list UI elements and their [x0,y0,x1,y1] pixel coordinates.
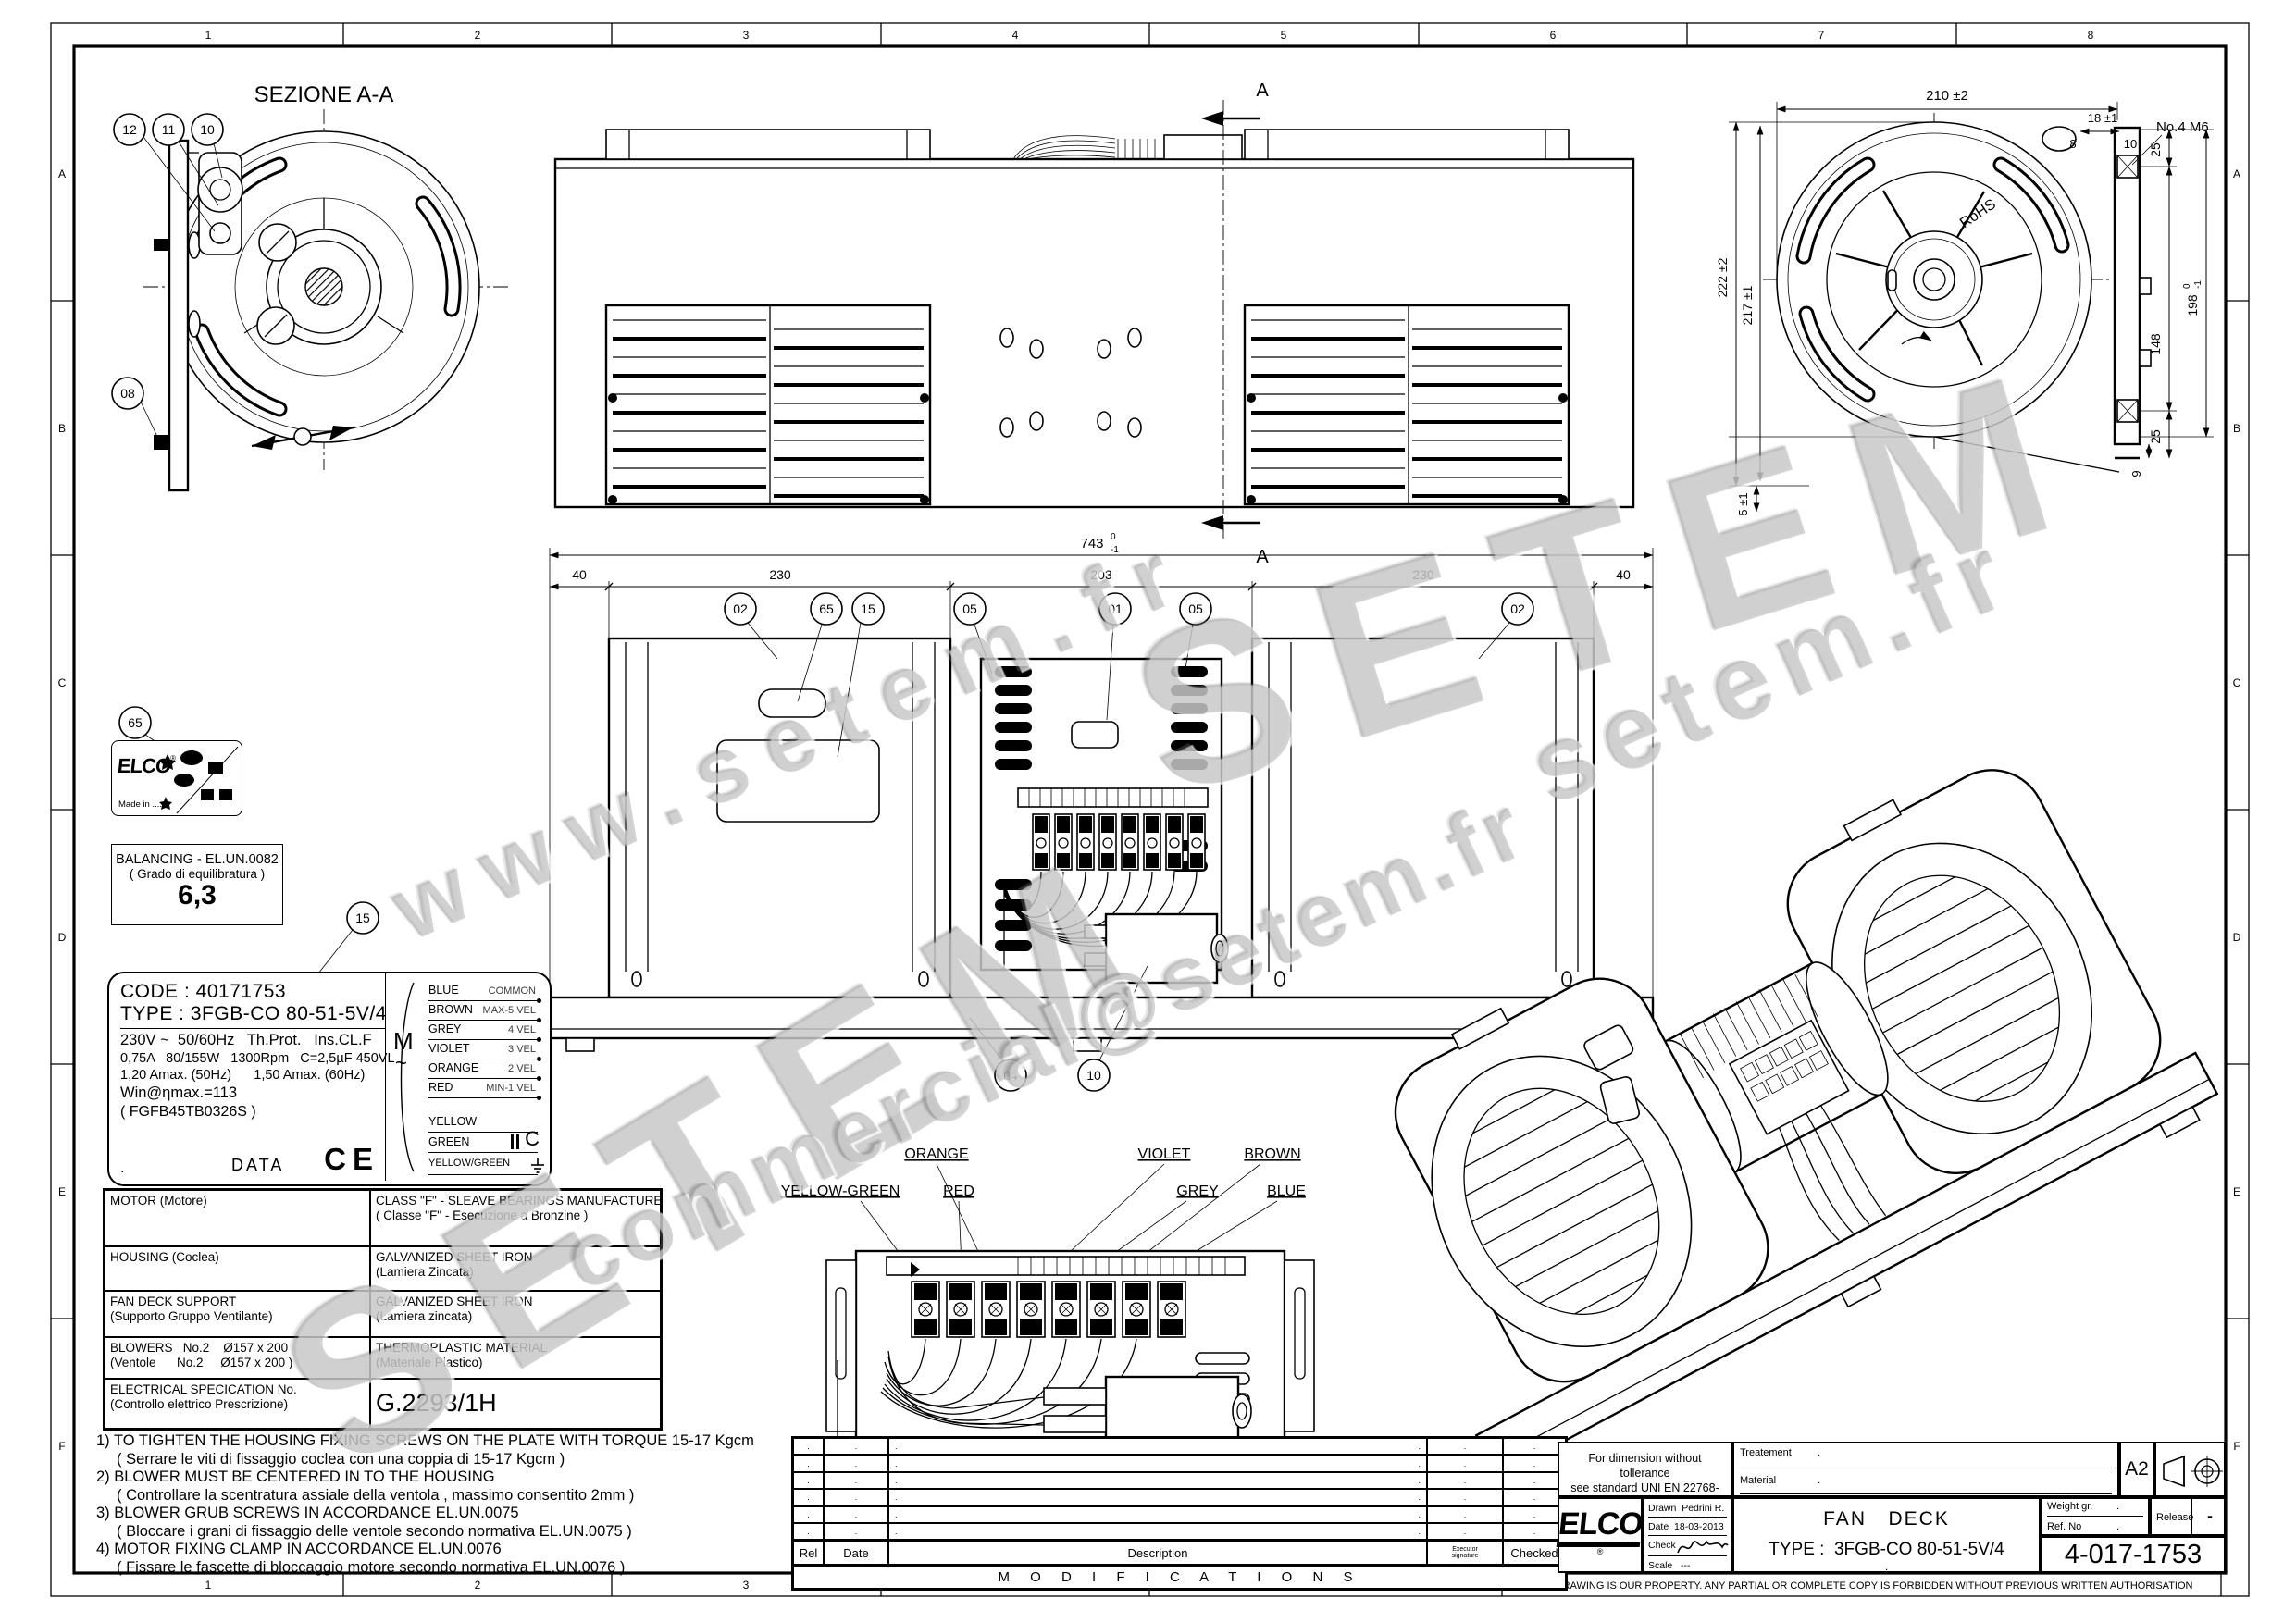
mod-header-rel: Rel [793,1540,824,1566]
svg-text:25: 25 [2148,142,2163,157]
svg-text:1: 1 [205,1579,212,1592]
svg-text:E: E [2233,1185,2240,1198]
svg-text:A: A [1256,547,1269,567]
svg-text:6: 6 [1550,29,1557,42]
plate-dot: . [120,1160,124,1177]
table-row: BLOWERS No.2 Ø157 x 200(Ventole No.2 Ø15… [105,1337,370,1379]
weight-ref-cell: Weight gr. . Ref. No . [2041,1497,2150,1536]
wire-row-brown: BROWNMAX-5 VEL [428,1000,538,1021]
svg-text:40: 40 [572,567,587,582]
elco-made-in-label: ELCO® Made in ..... [111,740,242,816]
table-row: HOUSING (Coclea) [105,1246,370,1291]
svg-text:40: 40 [1616,567,1631,582]
svg-text:7: 7 [1818,29,1825,42]
svg-text:8: 8 [2069,137,2076,151]
plate-type: TYPE : 3FGB-CO 80-51-5V/4 [120,1003,385,1029]
svg-text:15: 15 [861,601,875,616]
svg-text:10: 10 [2124,137,2137,151]
wire-row-orange: ORANGE2 VEL [428,1059,538,1079]
balancing-italian: ( Grado di equilibratura ) [112,867,282,881]
plate-ref-code: ( FGFB45TB0326S ) [120,1104,385,1121]
svg-text:148: 148 [2148,333,2163,355]
wiring-detail-view: ORANGE VIOLET BROWN YELLOW-GREEN RED GRE… [781,1146,1314,1469]
svg-text:5: 5 [1281,29,1287,42]
release-cell: Release - [2150,1497,2226,1536]
svg-text:VIOLET: VIOLET [1138,1146,1191,1162]
svg-text:4: 4 [1012,29,1019,42]
svg-text:203: 203 [1090,567,1112,582]
capacitor-symbol [511,1134,514,1149]
svg-text:A: A [58,167,66,180]
plate-electrical-2: 0,75A 80/155W 1300Rpm C=2,5µF 450VL [120,1051,385,1066]
modifications-title: M O D I F I C A T I O N S [793,1566,1566,1589]
drawing-number: 4-017-1753 [2065,1540,2202,1570]
plate-data-label: DATA [231,1156,284,1175]
svg-text:2: 2 [475,1579,481,1592]
wire-row-blue: BLUECOMMON [428,981,538,1001]
note-line: ( Controllare la scentratura assiale del… [96,1487,818,1505]
note-line: 1) TO TIGHTEN THE HOUSING FIXING SCREWS … [96,1432,818,1451]
svg-text:05: 05 [1188,601,1203,616]
svg-text:0: 0 [2182,283,2192,289]
svg-text:217 ±1: 217 ±1 [1740,285,1755,325]
svg-text:08: 08 [120,386,135,401]
svg-text:01: 01 [1108,601,1123,616]
blower-grille-left [606,305,930,504]
motor-data-plate: CODE : 40171753 TYPE : 3FGB-CO 80-51-5V/… [107,972,552,1186]
drawn-info-cell: Drawn Pedrini R. Date 18-03-2013 Check S… [1643,1497,1732,1573]
front-view: 743 0 -1 40 230 203 230 40 [550,532,1653,1091]
svg-text:15: 15 [355,911,370,925]
ground-symbol [530,1158,545,1173]
mod-header-date: Date [824,1540,888,1566]
svg-text:230: 230 [769,567,791,582]
capacitor [1085,914,1228,983]
svg-text:A: A [2233,167,2240,180]
plate-electrical-3: 1,20 Amax. (50Hz) 1,50 Amax. (60Hz) [120,1068,385,1083]
svg-text:F: F [2233,1440,2240,1453]
modifications-table: ...... ...... ...... ...... ...... .....… [791,1436,1568,1591]
svg-text:8: 8 [2088,29,2094,42]
note-line: ( Bloccare i grani di fissaggio delle ve… [96,1523,818,1542]
svg-text:B: B [58,422,66,435]
balancing-standard: BALANCING - EL.UN.0082 [112,852,282,867]
ce-mark: CE [324,1142,379,1177]
svg-text:ORANGE: ORANGE [904,1146,968,1162]
svg-text:02: 02 [1510,601,1525,616]
first-angle-projection-icon [2156,1443,2228,1499]
sheet-format: A2 [2119,1442,2154,1497]
svg-text:18 ±1: 18 ±1 [2088,111,2117,125]
note-line: 2) BLOWER MUST BE CENTERED IN TO THE HOU… [96,1468,818,1487]
wire-row-yellow: YELLOW [428,1112,538,1133]
certification-marks-graphic [112,741,243,817]
data-plate-left: CODE : 40171753 TYPE : 3FGB-CO 80-51-5V/… [120,981,385,1177]
svg-text:A: A [1256,81,1269,101]
wire-bundle-graphic [1013,135,1242,159]
mod-header-description: Description [888,1540,1427,1566]
blower-grille-right [1245,305,1569,504]
mounting-holes [1000,328,1141,437]
drawing-type: TYPE : 3FGB-CO 80-51-5V/4 [1734,1540,2039,1560]
svg-text:C: C [58,676,67,689]
wire-row-violet: VIOLET3 VEL [428,1039,538,1059]
svg-text:YELLOW-GREEN: YELLOW-GREEN [781,1183,900,1199]
svg-text:198: 198 [2185,294,2200,316]
svg-text:10: 10 [1086,1068,1101,1083]
svg-text:3: 3 [743,29,750,42]
table-row: ELECTRICAL SPECICATION No.(Controllo ele… [105,1379,370,1429]
plate-winding: Win@ηmax.=113 [120,1084,385,1102]
elco-logo: ELCO [1556,1506,1644,1547]
svg-text:05: 05 [962,601,977,616]
svg-text:10: 10 [200,122,215,137]
svg-text:02: 02 [733,601,748,616]
svg-text:BROWN: BROWN [1244,1146,1300,1162]
table-row: FAN DECK SUPPORT(Supporto Gruppo Ventila… [105,1291,370,1337]
svg-text:9: 9 [2129,470,2143,477]
svg-text:F: F [58,1440,65,1453]
materials-table: MOTOR (Motore) CLASS "F" - SLEAVE BEARIN… [103,1188,663,1431]
drawing-number-cell: 4-017-1753 [2041,1536,2226,1573]
svg-text:210 ±2: 210 ±2 [1926,88,1968,104]
treatment-material-cell: Treatement . Material . [1732,1442,2119,1497]
projection-symbol-cell [2154,1442,2226,1497]
note-line: ( Fissare le fascette di bloccaggio moto… [96,1559,818,1578]
note-line: 4) MOTOR FIXING CLAMP IN ACCORDANCE EL.U… [96,1541,818,1559]
svg-text:GREY: GREY [1176,1183,1219,1199]
balloon-08: 08 [112,378,159,440]
svg-text:E: E [58,1185,66,1198]
svg-text:65: 65 [819,601,834,616]
plate-electrical-1: 230V ~ 50/60Hz Th.Prot. Ins.CL.F [120,1032,385,1049]
holes-note: No.4 M6 [2156,119,2209,135]
electrical-spec-number: G.2293/1H [376,1389,497,1417]
svg-text:230: 230 [1412,567,1434,582]
section-view-title: SEZIONE A-A [254,82,394,107]
note-line: ( Serrare le viti di fissaggio coclea co… [96,1451,818,1469]
svg-text:BLUE: BLUE [1267,1183,1306,1199]
svg-text:D: D [58,931,67,944]
wire-row-green: GREEN C [428,1133,538,1153]
motor-tilde: ~ [395,1051,407,1075]
svg-text:D: D [2233,931,2241,944]
title-block: For dimension without tollerancesee stan… [1558,1442,2226,1573]
end-view: RoHS 210 ±2 18 ±1 8 10 No.4 M6 [1715,88,2214,516]
svg-text:65: 65 [128,715,143,730]
svg-text:RED: RED [943,1183,974,1199]
balancing-value: 6,3 [112,881,282,911]
svg-text:11: 11 [162,122,176,137]
assembly-notes: 1) TO TIGHTEN THE HOUSING FIXING SCREWS … [96,1432,818,1577]
drawing-sheet: 1 2 3 4 5 6 7 8 1 2 3 4 DRAWING MADE BY … [0,0,2296,1623]
svg-text:0: 0 [1111,532,1116,542]
svg-text:1: 1 [205,29,212,42]
data-plate-wiring: M ~ BLUECOMMON BROWNMAX-5 VEL GREY4 VEL … [385,973,549,1181]
property-note: THIS DRAWING IS OUR PROPERTY. ANY PARTIA… [1530,1580,2193,1592]
balancing-label: BALANCING - EL.UN.0082 ( Grado di equili… [111,844,283,925]
plate-code: CODE : 40171753 [120,981,385,1003]
svg-text:C: C [2233,676,2241,689]
svg-text:-1: -1 [2193,280,2203,289]
svg-text:3: 3 [743,1579,750,1592]
mod-header-executor: Executorsignature [1427,1540,1503,1566]
svg-text:B: B [2233,422,2240,435]
drawing-title-cell: FAN DECK TYPE : 3FGB-CO 80-51-5V/4 . [1732,1497,2041,1573]
svg-text:25: 25 [2148,429,2163,444]
wire-row-yellow-green: YELLOW/GREEN [428,1155,538,1175]
svg-text:04: 04 [1003,1068,1018,1083]
svg-text:5 ±1: 5 ±1 [1736,492,1750,515]
note-line: 3) BLOWER GRUB SCREWS IN ACCORDANCE EL.U… [96,1505,818,1523]
svg-text:12: 12 [122,122,137,137]
svg-text:-1: -1 [1111,545,1119,555]
company-logo-cell: ELCO® [1558,1497,1643,1573]
svg-text:2: 2 [475,29,481,42]
wire-row-red: REDMIN-1 VEL [428,1078,538,1098]
drawing-title: FAN DECK [1734,1508,2039,1530]
wire-row-grey: GREY4 VEL [428,1020,538,1040]
table-row: MOTOR (Motore) [105,1190,370,1246]
motor-brace-graphic [386,973,432,1181]
section-view-a-a: SEZIONE A-A [112,82,509,490]
tolerance-note: For dimension without tollerancesee stan… [1558,1442,1732,1497]
plan-view: A A [555,81,1633,567]
svg-text:743: 743 [1080,536,1103,551]
svg-text:222 ±2: 222 ±2 [1715,257,1730,297]
